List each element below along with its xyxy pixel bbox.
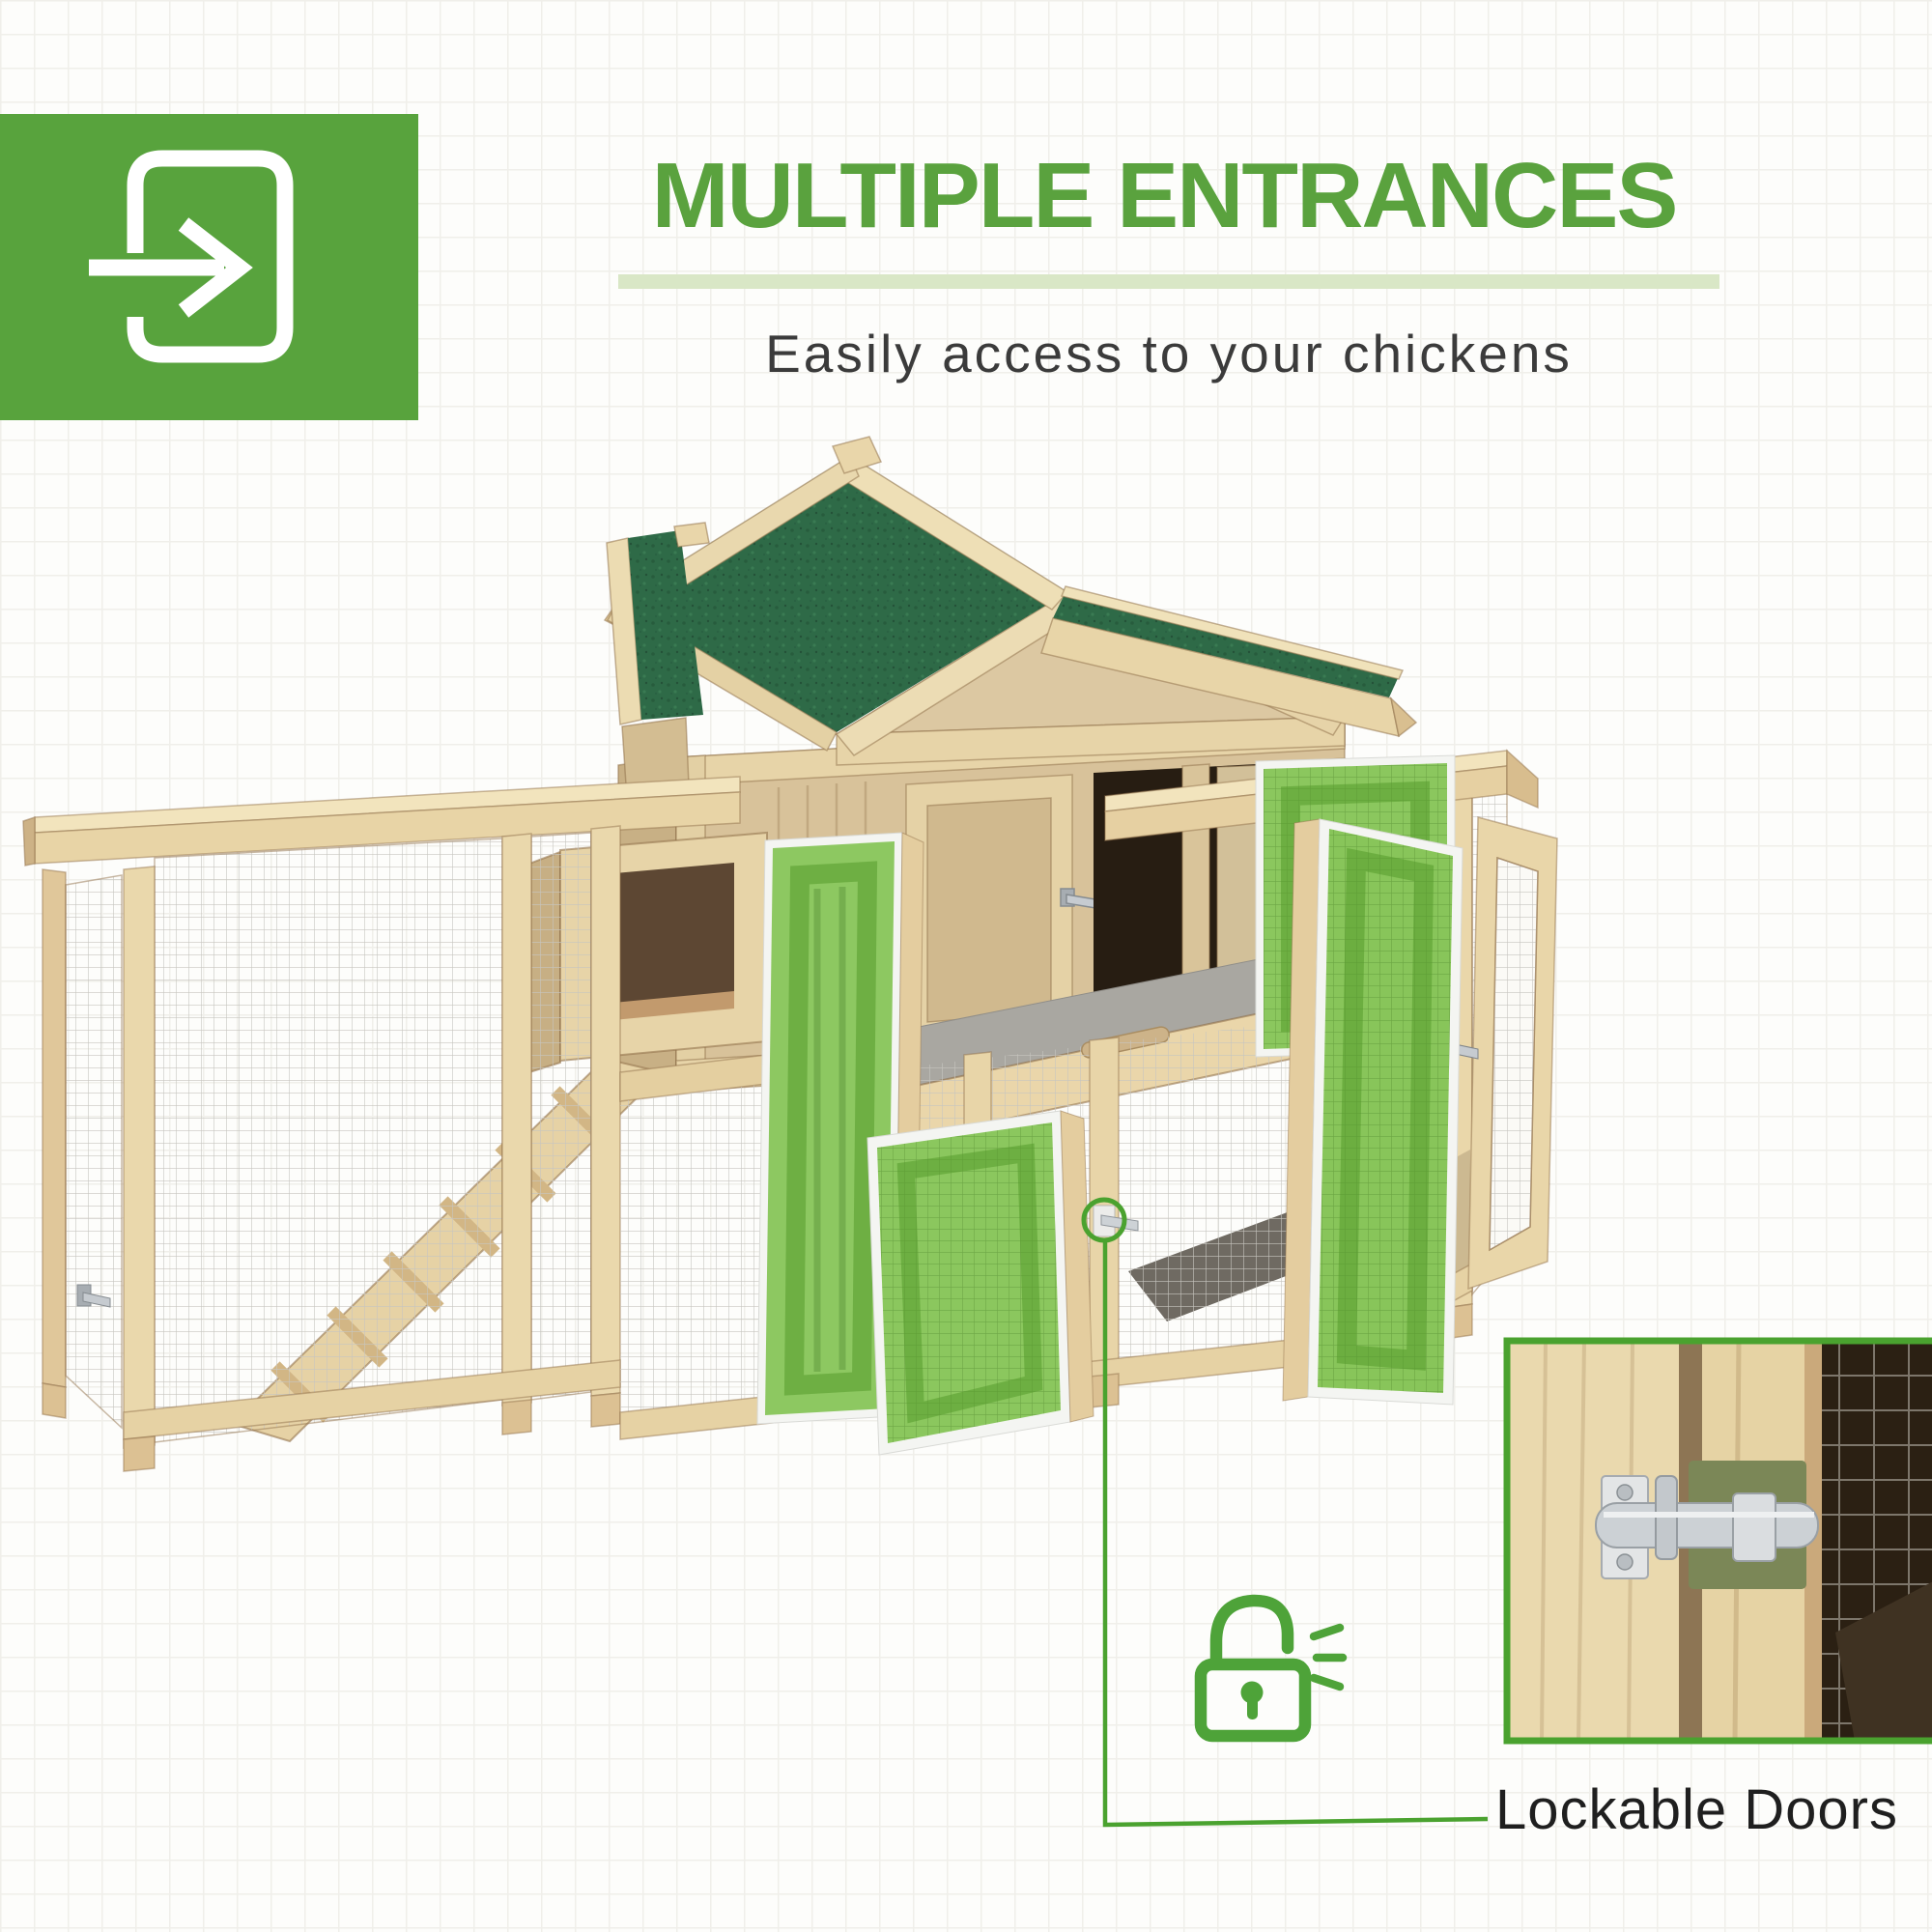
right-run-open-door — [1468, 817, 1557, 1289]
highlight-door-panel-right-front — [1283, 819, 1463, 1405]
highlight-door-panel-small-swung — [867, 1111, 1094, 1455]
slide-bolt-latch — [1596, 1461, 1818, 1589]
chicken-coop-illustration — [0, 0, 1932, 1932]
lockable-doors-inset-photo — [1507, 1341, 1932, 1741]
open-padlock-icon — [1201, 1601, 1343, 1736]
callout-label: Lockable Doors — [1495, 1777, 1898, 1842]
page: MULTIPLE ENTRANCES Easily access to your… — [0, 0, 1932, 1932]
